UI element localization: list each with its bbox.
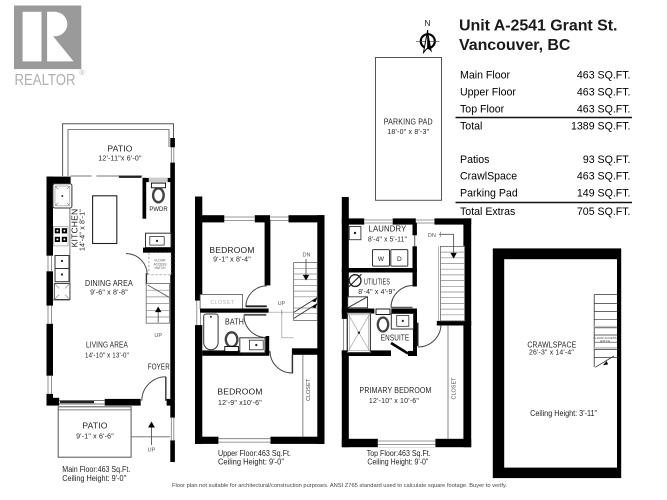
- svg-text:PWDR: PWDR: [149, 207, 168, 213]
- svg-text:CLOSET: CLOSET: [306, 378, 312, 401]
- svg-text:463 SQ.FT.: 463 SQ.FT.: [577, 171, 631, 183]
- svg-text:DN: DN: [303, 253, 311, 259]
- svg-text:PATIO: PATIO: [82, 421, 107, 431]
- svg-text:14'-10" x 13'-0": 14'-10" x 13'-0": [85, 352, 129, 359]
- svg-text:BEDROOM: BEDROOM: [209, 245, 254, 255]
- svg-text:LAUNDRY: LAUNDRY: [369, 224, 407, 234]
- svg-text:CLOSET: CLOSET: [210, 300, 235, 306]
- svg-text:FOYER: FOYER: [148, 362, 170, 372]
- svg-text:12'-11"x 6'-0": 12'-11"x 6'-0": [98, 155, 142, 162]
- svg-text:BATH: BATH: [225, 317, 244, 327]
- svg-text:PATIO: PATIO: [107, 143, 132, 153]
- svg-text:Upper Floor: Upper Floor: [460, 87, 516, 99]
- svg-text:N: N: [424, 18, 430, 28]
- svg-text:PRIMARY BEDROOM: PRIMARY BEDROOM: [360, 385, 432, 395]
- svg-text:463 SQ.FT.: 463 SQ.FT.: [577, 70, 631, 82]
- svg-text:Ceiling Height: 9'-0": Ceiling Height: 9'-0": [367, 457, 428, 466]
- svg-text:93 SQ.FT.: 93 SQ.FT.: [583, 154, 631, 166]
- svg-text:®: ®: [80, 69, 86, 77]
- svg-text:Main Floor: Main Floor: [460, 70, 511, 82]
- svg-text:UP: UP: [148, 448, 156, 454]
- svg-text:KITCHEN: KITCHEN: [69, 209, 79, 248]
- svg-text:LIVING AREA: LIVING AREA: [86, 340, 128, 350]
- svg-text:BEDROOM: BEDROOM: [217, 387, 262, 397]
- svg-text:CRAWLSPACE: CRAWLSPACE: [527, 339, 576, 349]
- svg-text:Main Floor:463 Sq.Ft.: Main Floor:463 Sq.Ft.: [62, 465, 130, 474]
- svg-text:149 SQ.FT.: 149 SQ.FT.: [577, 188, 631, 200]
- svg-text:Top Floor: Top Floor: [460, 104, 505, 116]
- svg-text:Unit A-2541 Grant St.: Unit A-2541 Grant St.: [459, 18, 617, 35]
- svg-text:ENSUITE: ENSUITE: [381, 333, 410, 343]
- svg-text:18'-0" x 8'-3": 18'-0" x 8'-3": [387, 129, 429, 136]
- svg-text:Total Extras: Total Extras: [460, 206, 515, 218]
- svg-text:CLOSET: CLOSET: [452, 377, 458, 400]
- svg-text:REALTOR: REALTOR: [15, 72, 76, 89]
- svg-text:9'-6" x 8'-8": 9'-6" x 8'-8": [90, 290, 128, 297]
- svg-text:9'-1" x 8'-4": 9'-1" x 8'-4": [213, 256, 251, 263]
- svg-text:Patios: Patios: [460, 154, 489, 166]
- svg-text:UP: UP: [154, 333, 162, 339]
- svg-text:12'-9" x10'-6": 12'-9" x10'-6": [218, 400, 262, 407]
- svg-text:Vancouver, BC: Vancouver, BC: [459, 37, 571, 54]
- svg-text:D: D: [397, 256, 402, 263]
- svg-text:705 SQ.FT.: 705 SQ.FT.: [577, 206, 631, 218]
- svg-text:DINING AREA: DINING AREA: [85, 278, 133, 288]
- svg-text:8'-4" x 5'-11": 8'-4" x 5'-11": [368, 237, 407, 244]
- svg-text:Total: Total: [460, 121, 482, 133]
- svg-text:PARKING PAD: PARKING PAD: [384, 117, 433, 127]
- svg-text:12'-10" x 10'-6": 12'-10" x 10'-6": [369, 398, 419, 405]
- svg-text:Ceiling Height: 9'-0": Ceiling Height: 9'-0": [62, 474, 126, 483]
- svg-text:UTILITIES: UTILITIES: [364, 277, 390, 287]
- svg-text:Ceiling Height: 9'-0": Ceiling Height: 9'-0": [218, 457, 284, 466]
- svg-text:W: W: [378, 256, 385, 263]
- svg-text:14'-4" x 8'-1": 14'-4" x 8'-1": [80, 209, 87, 251]
- svg-text:8'-4" x 4'-9": 8'-4" x 4'-9": [358, 289, 395, 296]
- svg-text:Ceiling Height: 3'-11": Ceiling Height: 3'-11": [530, 409, 597, 418]
- svg-text:1389 SQ.FT.: 1389 SQ.FT.: [571, 121, 630, 133]
- svg-text:9'-1" x 6'-6": 9'-1" x 6'-6": [76, 434, 114, 441]
- svg-text:Floor plan not suitable for ar: Floor plan not suitable for architectura…: [172, 483, 507, 489]
- svg-text:463 SQ.FT.: 463 SQ.FT.: [577, 87, 631, 99]
- svg-text:CrawlSpace: CrawlSpace: [460, 171, 517, 183]
- svg-text:DN: DN: [428, 233, 436, 239]
- svg-text:HATCH: HATCH: [155, 266, 166, 270]
- svg-text:UP: UP: [278, 301, 286, 307]
- svg-text:Parking Pad: Parking Pad: [460, 188, 518, 200]
- svg-text:26'-3" x 14'-4": 26'-3" x 14'-4": [529, 349, 574, 356]
- svg-text:463 SQ.FT.: 463 SQ.FT.: [577, 104, 631, 116]
